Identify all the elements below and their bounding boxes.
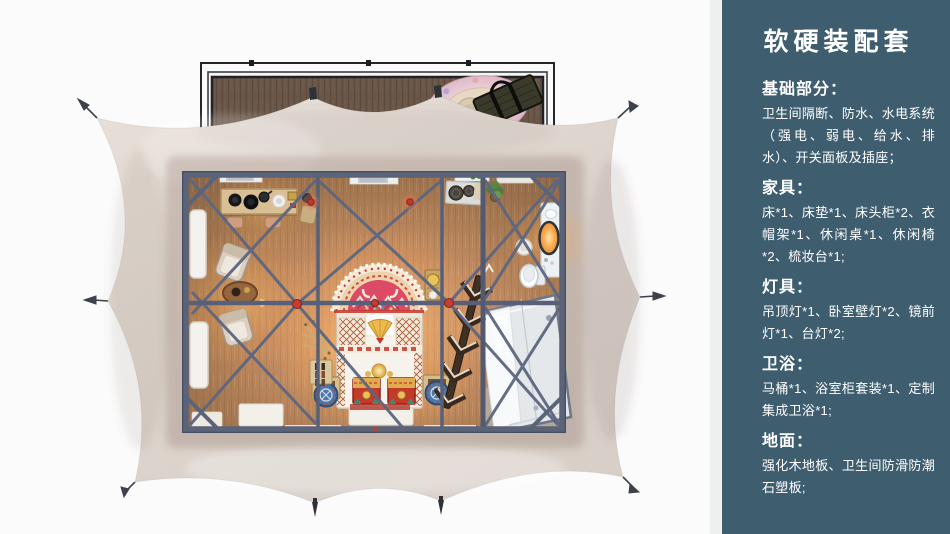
- washstand: [445, 181, 485, 205]
- spec-section-bathroom: 卫浴： 马桶*1、浴室柜套装*1、定制集成卫浴*1;: [762, 355, 935, 422]
- bed: [337, 311, 422, 410]
- spec-section-furniture: 家具： 床*1、床垫*1、床头柜*2、衣帽架*1、休闲桌*1、休闲椅*2、梳妆台…: [762, 179, 935, 268]
- ground-stake: [312, 496, 444, 517]
- sidebar-title: 软硬装配套: [722, 22, 950, 58]
- section-body: 马桶*1、浴室柜套装*1、定制集成卫浴*1;: [762, 378, 935, 422]
- screenshot-root: 软硬装配套 基础部分： 卫生间隔断、防水、水电系统（强电、弱电、给水、排水）、开…: [0, 0, 950, 534]
- storage-chest: [353, 378, 380, 404]
- round-tea-table: [223, 282, 257, 304]
- spec-section-basics: 基础部分： 卫生间隔断、防水、水电系统（强电、弱电、给水、排水）、开关面板及插座…: [762, 80, 935, 169]
- section-body: 吊顶灯*1、卧室壁灯*2、镜前灯*1、台灯*2;: [762, 301, 935, 345]
- section-body: 卫生间隔断、防水、水电系统（强电、弱电、给水、排水）、开关面板及插座；: [762, 103, 935, 169]
- shoe-rack: [310, 360, 332, 386]
- spec-sections: 基础部分： 卫生间隔断、防水、水电系统（强电、弱电、给水、排水）、开关面板及插座…: [722, 58, 950, 499]
- connector-node: [373, 427, 378, 432]
- floorplan-canvas: [0, 0, 710, 534]
- vanity-mirror: [540, 222, 559, 254]
- storage-chest: [388, 378, 415, 404]
- section-heading: 灯具：: [762, 278, 935, 298]
- section-body: 床*1、床垫*1、床头柜*2、衣帽架*1、休闲桌*1、休闲椅*2、梳妆台*1;: [762, 202, 935, 268]
- floorplan-svg: [0, 0, 710, 534]
- section-body: 强化木地板、卫生间防滑防潮石塑板;: [762, 455, 935, 499]
- side-table: [425, 270, 441, 300]
- section-heading: 地面：: [762, 432, 935, 452]
- spec-section-flooring: 地面： 强化木地板、卫生间防滑防潮石塑板;: [762, 432, 935, 499]
- section-heading: 家具：: [762, 179, 935, 199]
- section-heading: 基础部分：: [762, 80, 935, 100]
- spec-sidebar: 软硬装配套 基础部分： 卫生间隔断、防水、水电系统（强电、弱电、给水、排水）、开…: [710, 0, 950, 534]
- section-heading: 卫浴：: [762, 355, 935, 375]
- spec-section-lighting: 灯具： 吊顶灯*1、卧室壁灯*2、镜前灯*1、台灯*2;: [762, 278, 935, 345]
